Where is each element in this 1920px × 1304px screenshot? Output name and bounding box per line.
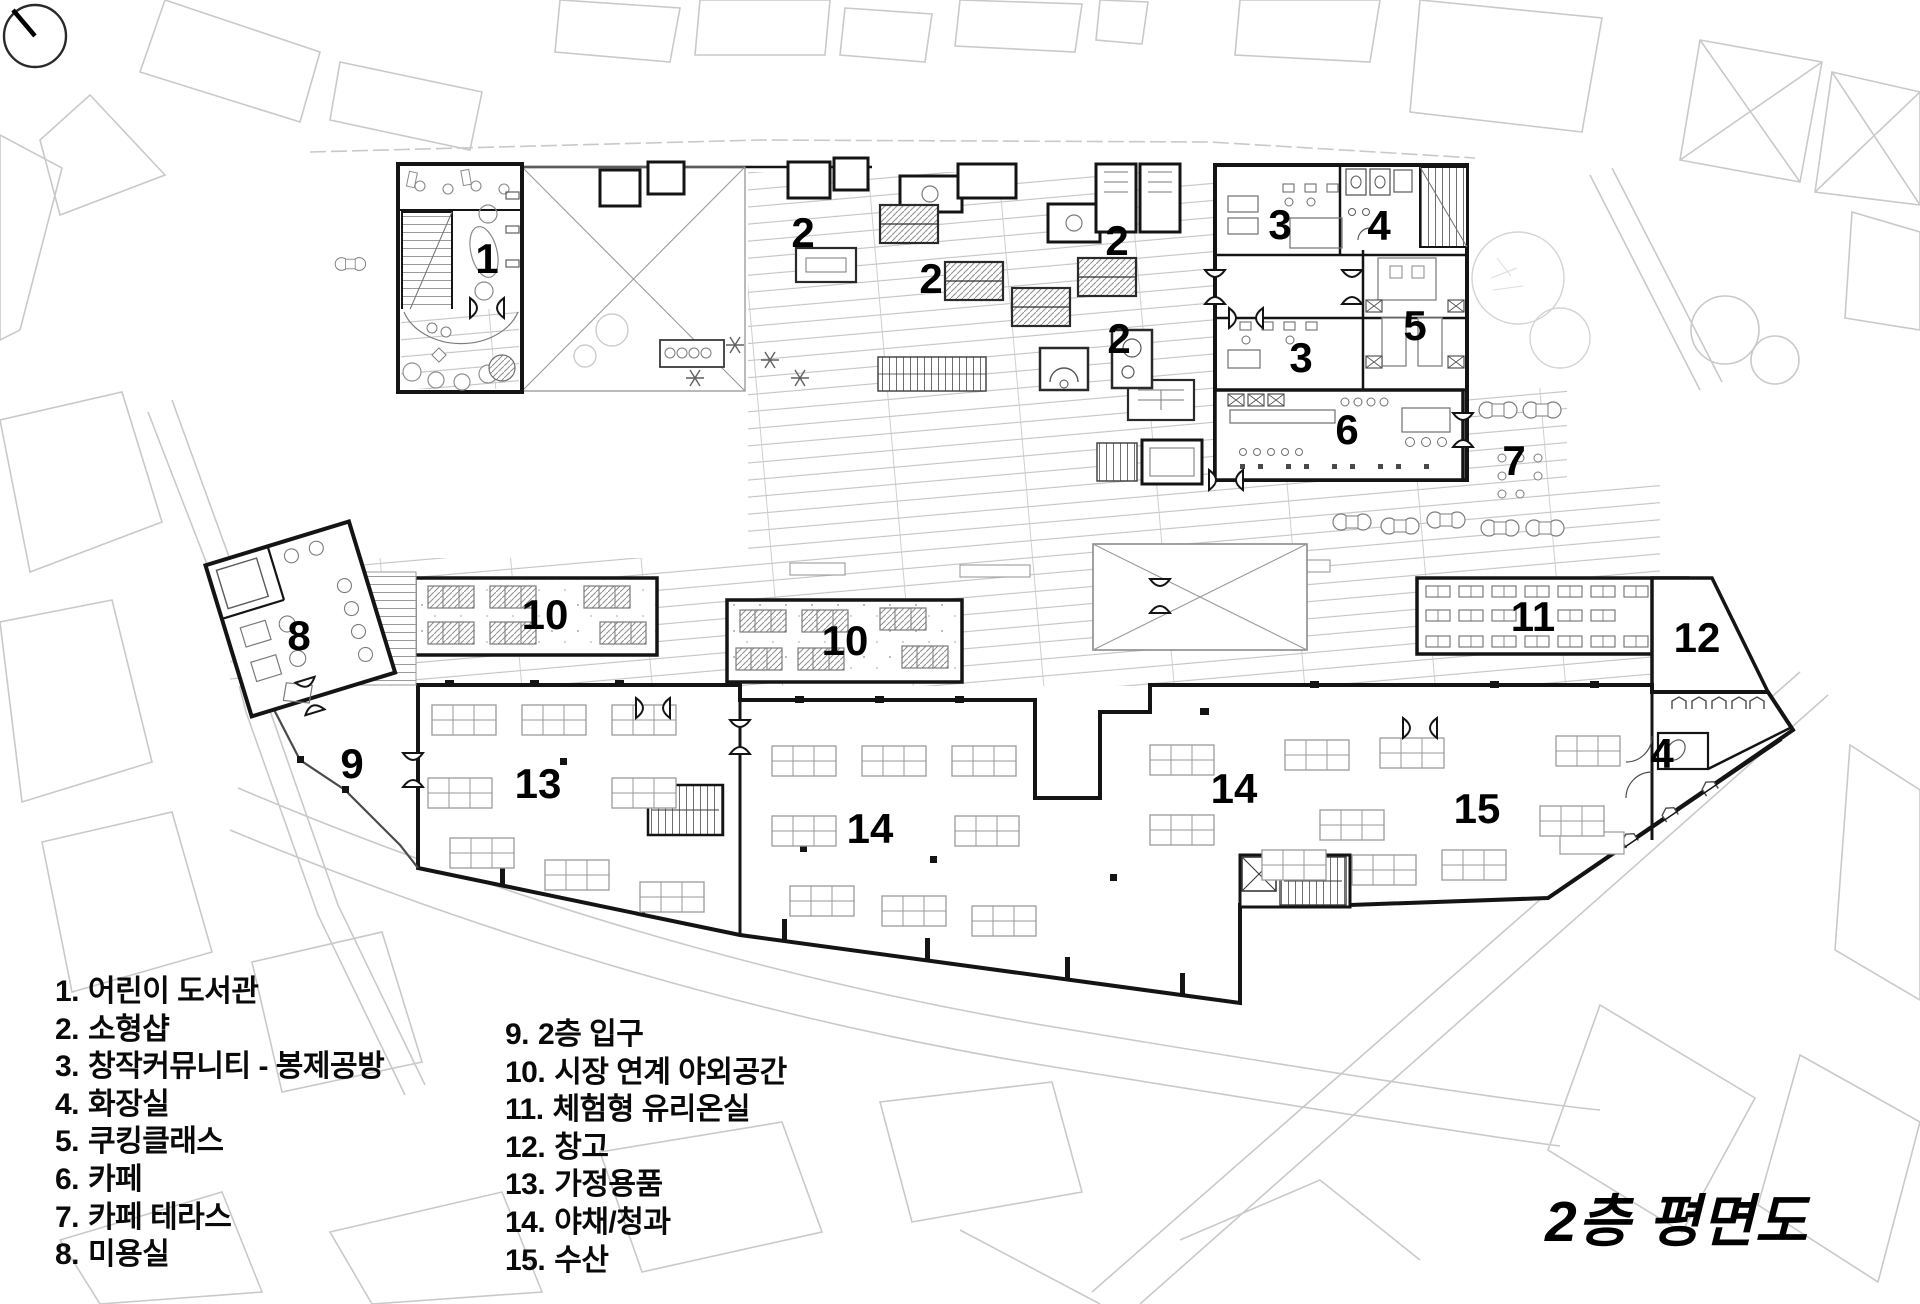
room-number-label: 14 [1211, 765, 1258, 812]
room-number-label: 2 [791, 209, 814, 256]
legend-item: 10.시장 연계 야외공간 [505, 1054, 787, 1092]
room-number-label: 9 [340, 740, 363, 787]
legend-item: 4.화장실 [55, 1086, 384, 1124]
room-number-label: 12 [1674, 614, 1721, 661]
room-number-label: 5 [1403, 302, 1426, 349]
room-number-label: 2 [1107, 315, 1130, 362]
room-number-label: 4 [1650, 730, 1674, 777]
legend-item: 2.소형샵 [55, 1011, 384, 1049]
room-number-label: 3 [1289, 334, 1312, 381]
room-number-label: 6 [1335, 406, 1358, 453]
room-number-label: 11 [1511, 593, 1555, 640]
legend-item: 7.카페 테라스 [55, 1199, 384, 1237]
legend-item: 15.수산 [505, 1242, 787, 1280]
legend-item: 13.가정용품 [505, 1166, 787, 1204]
legend-item: 11.체험형 유리온실 [505, 1091, 787, 1129]
room-number-label: 4 [1367, 202, 1391, 249]
room-number-label: 7 [1502, 437, 1525, 484]
legend-item: 14.야채/청과 [505, 1204, 787, 1242]
plan-title: 2층 평면도 [1545, 1176, 1808, 1258]
legend-column-right: 9.2층 입구10.시장 연계 야외공간11.체험형 유리온실12.창고13.가… [505, 1016, 787, 1279]
room-number-label: 10 [522, 591, 569, 638]
legend-item: 9.2층 입구 [505, 1016, 787, 1054]
skylight [1093, 544, 1307, 650]
legend-column-left: 1.어린이 도서관2.소형샵3.창작커뮤니티 - 봉제공방4.화장실5.쿠킹클래… [55, 973, 384, 1274]
legend-item: 12.창고 [505, 1129, 787, 1167]
room-number-label: 1 [475, 235, 498, 282]
room-number-label: 2 [919, 255, 942, 302]
room-number-label: 8 [287, 612, 310, 659]
legend-item: 6.카페 [55, 1161, 384, 1199]
legend-item: 5.쿠킹클래스 [55, 1123, 384, 1161]
north-arrow-icon [0, 0, 70, 70]
room-number-label: 10 [822, 617, 869, 664]
room-number-label: 14 [847, 805, 894, 852]
legend-item: 1.어린이 도서관 [55, 973, 384, 1011]
room-number-label: 3 [1268, 201, 1291, 248]
legend-item: 8.미용실 [55, 1236, 384, 1274]
room-number-label: 13 [515, 760, 562, 807]
floor-plan-page: 122223345678910101112131414154 1.어린이 도서관… [0, 0, 1920, 1304]
legend-item: 3.창작커뮤니티 - 봉제공방 [55, 1048, 384, 1086]
room-number-label: 2 [1105, 217, 1128, 264]
room-number-label: 15 [1454, 785, 1501, 832]
